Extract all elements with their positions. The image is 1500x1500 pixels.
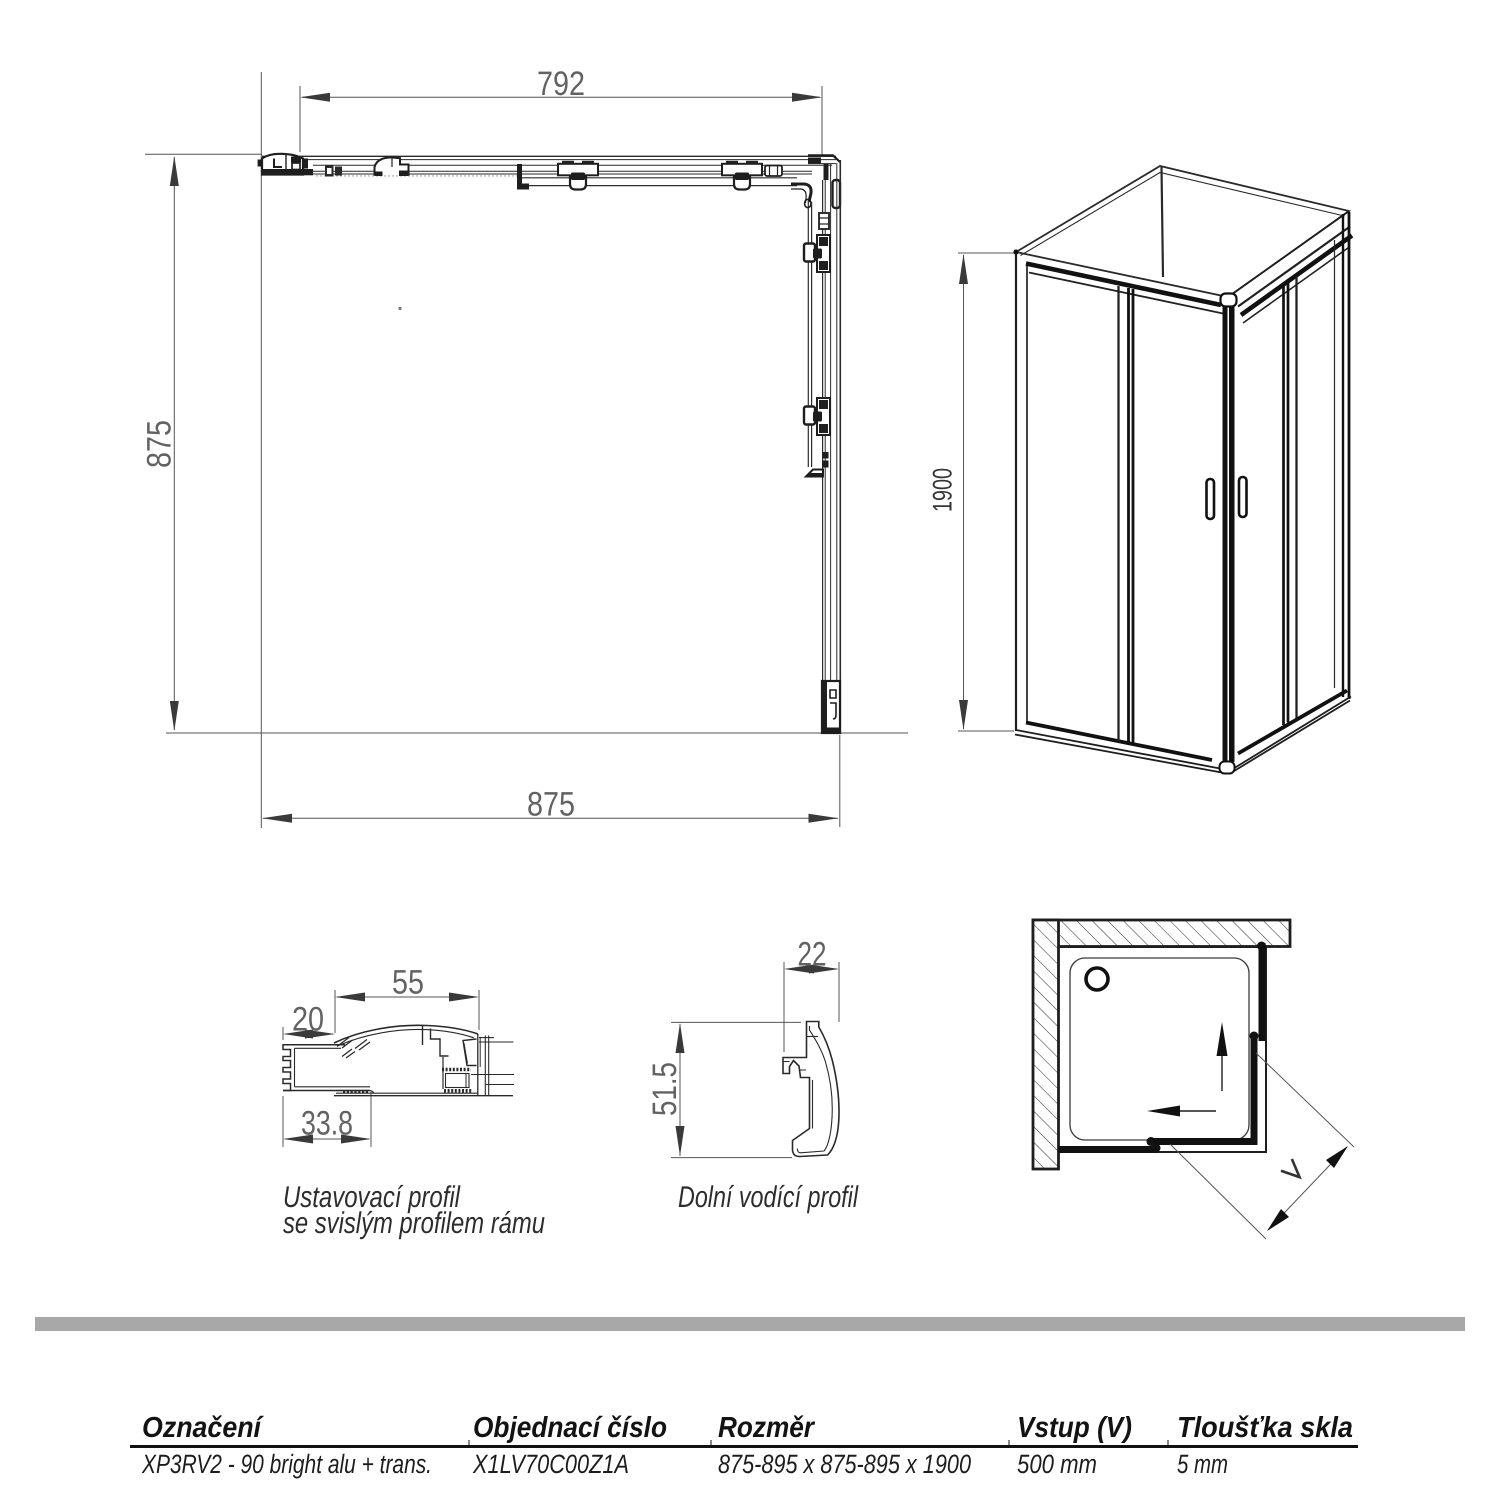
svg-text:1900: 1900 (928, 468, 958, 512)
svg-text:20: 20 (292, 1001, 324, 1039)
svg-text:500 mm: 500 mm (1017, 1449, 1097, 1479)
svg-text:Označení: Označení (142, 1412, 265, 1444)
svg-text:51.5: 51.5 (646, 1062, 684, 1116)
svg-text:Rozměr: Rozměr (718, 1412, 816, 1444)
svg-text:55: 55 (392, 963, 424, 1001)
svg-text:Objednací číslo: Objednací číslo (473, 1412, 667, 1444)
svg-text:X1LV70C00Z1A: X1LV70C00Z1A (472, 1449, 629, 1479)
svg-text:33.8: 33.8 (301, 1105, 353, 1143)
svg-text:22: 22 (798, 936, 827, 974)
svg-text:Dolní vodící profil: Dolní vodící profil (678, 1181, 859, 1214)
svg-text:792: 792 (537, 65, 585, 103)
svg-text:875: 875 (527, 785, 575, 823)
svg-text:se svislým profilem rámu: se svislým profilem rámu (283, 1207, 545, 1240)
svg-text:Vstup (V): Vstup (V) (1017, 1412, 1132, 1444)
svg-text:XP3RV2 - 90 bright alu + trans: XP3RV2 - 90 bright alu + trans. (141, 1449, 432, 1479)
svg-text:Tloušťka skla: Tloušťka skla (1177, 1412, 1353, 1444)
svg-text:875-895 x 875-895 x 1900: 875-895 x 875-895 x 1900 (718, 1449, 971, 1479)
svg-text:5 mm: 5 mm (1177, 1449, 1228, 1479)
svg-text:875: 875 (141, 420, 179, 468)
